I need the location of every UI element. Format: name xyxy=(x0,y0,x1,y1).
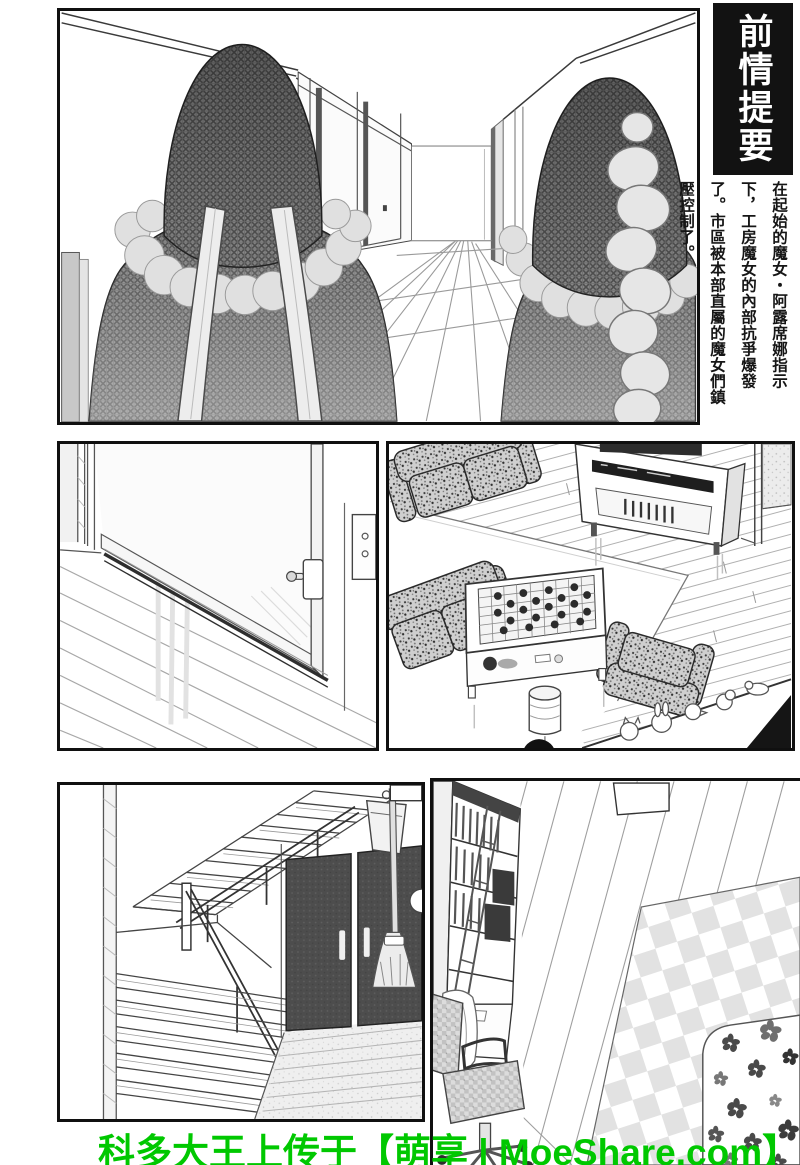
panel-staircase xyxy=(57,782,425,1122)
living-room-illustration xyxy=(389,444,792,748)
panel-study-room xyxy=(430,778,800,1165)
staircase-illustration xyxy=(60,785,422,1119)
bookshelf xyxy=(433,781,520,1009)
recap-title-box: 前情提要 xyxy=(713,3,793,175)
sliding-door-illustration xyxy=(60,444,376,748)
watermark-text: 科多大王上传于【萌享 | MoeShare.com】 xyxy=(98,1122,800,1165)
panel-sliding-door xyxy=(57,441,379,751)
white-box xyxy=(614,783,670,815)
recap-title: 前情提要 xyxy=(736,13,771,165)
hallway-scene-illustration xyxy=(60,11,697,422)
manga-page: 前情提要 在起始的魔女・阿露席娜指示下，工房魔女的內部抗爭爆發了。市區被本部直屬… xyxy=(0,0,800,1165)
panel-living-room xyxy=(386,441,795,751)
left-wall xyxy=(103,785,116,1119)
hallway-left-wall-corner xyxy=(62,252,89,422)
recap-body-text: 在起始的魔女・阿露席娜指示下，工房魔女的內部抗爭爆發了。市區被本部直屬的魔女們鎮… xyxy=(696,181,794,419)
study-room-illustration xyxy=(433,781,800,1165)
panel-hallway-two-witches xyxy=(57,8,700,425)
